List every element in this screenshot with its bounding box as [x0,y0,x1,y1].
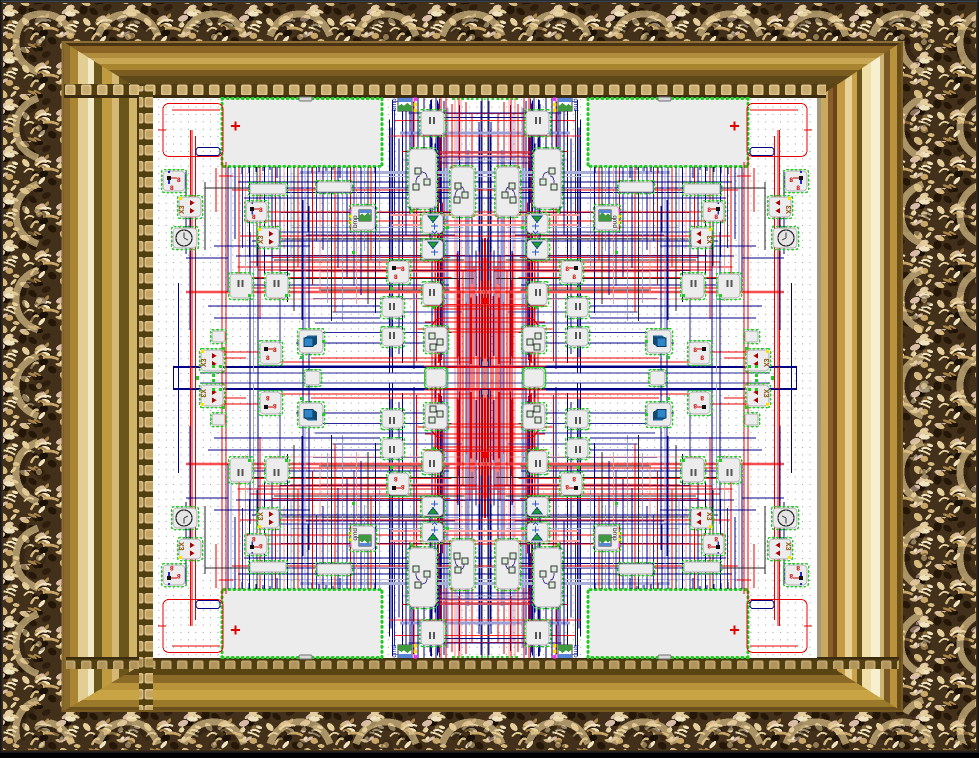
svg-text:8: 8 [252,214,256,221]
svg-text:bmp: bmp [352,215,359,228]
svg-text:8: 8 [170,185,174,192]
svg-text:X3: X3 [179,205,186,214]
svg-text:X3: X3 [258,235,265,244]
svg-text:bmp: bmp [391,98,398,111]
svg-text:8: 8 [394,274,398,281]
svg-text:8: 8 [273,347,277,354]
svg-text:8: 8 [266,355,270,362]
svg-text:8: 8 [401,266,405,273]
svg-text:X3: X3 [201,358,208,367]
svg-text:8: 8 [177,177,181,184]
svg-text:8: 8 [259,207,263,214]
